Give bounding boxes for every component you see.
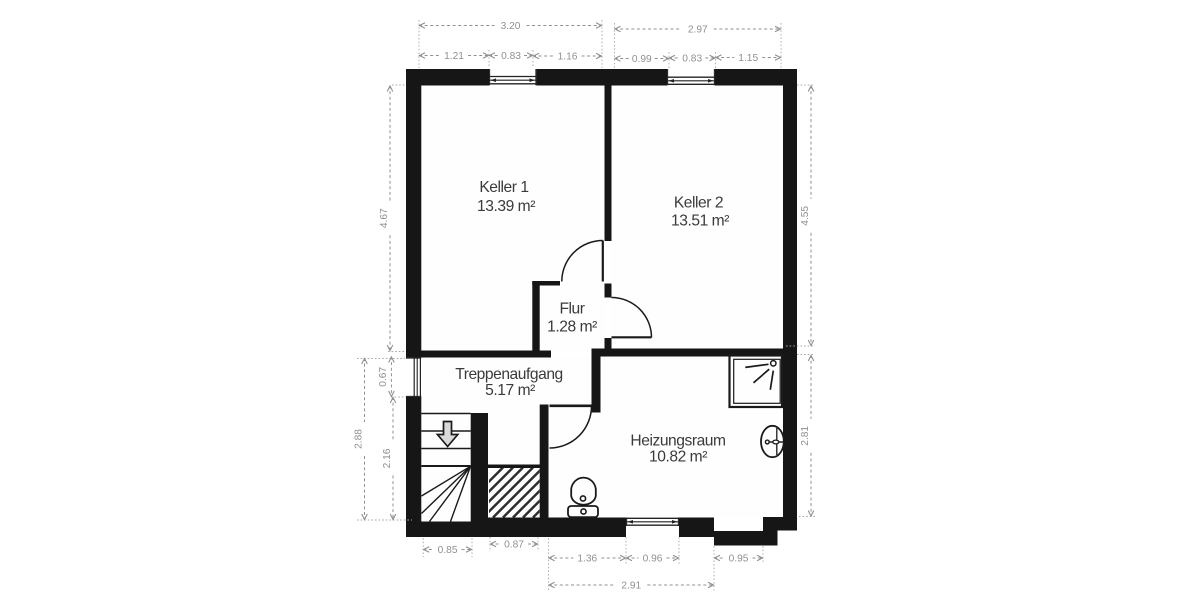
svg-text:5.17 m²: 5.17 m²	[485, 382, 535, 399]
svg-text:1.36: 1.36	[577, 554, 597, 565]
svg-text:0.83: 0.83	[682, 54, 702, 65]
svg-text:0.96: 0.96	[643, 554, 663, 565]
svg-text:Heizungsraum: Heizungsraum	[630, 433, 725, 450]
svg-text:2.91: 2.91	[621, 581, 641, 592]
svg-text:1.28 m²: 1.28 m²	[547, 319, 597, 336]
svg-text:Keller 2: Keller 2	[674, 195, 723, 212]
svg-text:0.85: 0.85	[438, 545, 458, 556]
svg-text:2.16: 2.16	[382, 448, 393, 468]
svg-text:1.21: 1.21	[444, 51, 464, 62]
svg-text:0.87: 0.87	[504, 540, 524, 551]
svg-text:4.55: 4.55	[800, 206, 811, 226]
svg-text:2.81: 2.81	[800, 426, 811, 446]
svg-text:1.16: 1.16	[558, 52, 578, 63]
svg-text:Keller 1: Keller 1	[479, 179, 528, 196]
svg-text:1.15: 1.15	[738, 53, 758, 64]
svg-text:13.51 m²: 13.51 m²	[671, 213, 729, 230]
svg-text:10.82 m²: 10.82 m²	[649, 449, 707, 466]
svg-text:Treppenaufgang: Treppenaufgang	[455, 366, 563, 383]
svg-text:2.88: 2.88	[353, 429, 364, 449]
svg-text:0.95: 0.95	[729, 554, 749, 565]
svg-text:0.83: 0.83	[501, 51, 521, 62]
svg-text:4.67: 4.67	[379, 208, 390, 228]
svg-text:2.97: 2.97	[688, 25, 708, 36]
svg-text:13.39 m²: 13.39 m²	[477, 198, 535, 215]
svg-text:3.20: 3.20	[501, 21, 521, 32]
svg-text:0.67: 0.67	[378, 367, 389, 387]
svg-text:Flur: Flur	[559, 301, 584, 318]
svg-text:0.99: 0.99	[632, 54, 652, 65]
